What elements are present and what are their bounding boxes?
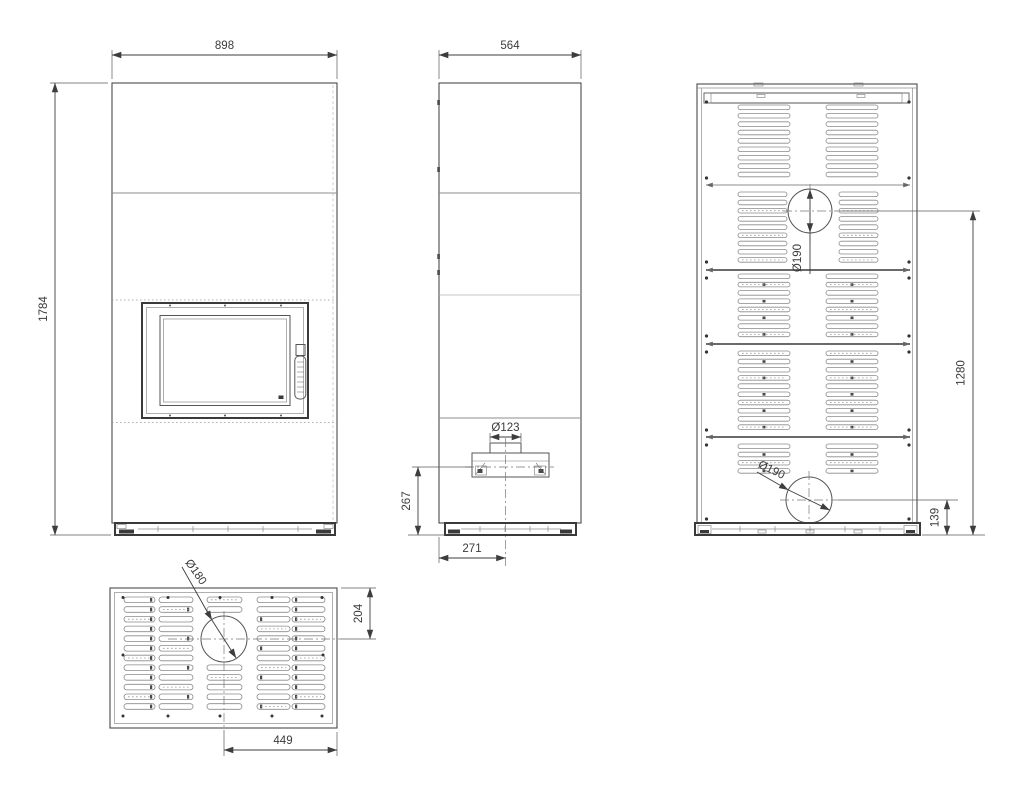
- dim-inlet-height: 267: [401, 491, 413, 510]
- slot-mark: [763, 409, 766, 412]
- vent-slot: [839, 217, 878, 222]
- top-vent-slots: [124, 597, 325, 709]
- slot-mark: [150, 598, 152, 602]
- dim-upper-outlet-height: 1280: [956, 360, 968, 386]
- vent-slot: [738, 249, 787, 254]
- vent-slot: [738, 113, 790, 118]
- screw-dot: [122, 596, 125, 599]
- rear-flue-outlet: Ø190: [756, 459, 838, 523]
- screw-dot: [271, 715, 274, 718]
- slot-mark: [295, 608, 297, 612]
- screw-dot: [907, 334, 910, 337]
- vent-slot: [738, 367, 790, 372]
- vent-slot: [738, 147, 790, 152]
- dim-front-height: 1784: [38, 296, 50, 322]
- dim-inlet-diameter: Ø123: [491, 422, 519, 434]
- slot-mark: [295, 637, 297, 641]
- vent-slot: [826, 105, 878, 110]
- slot-mark: [187, 637, 189, 641]
- vent-slot: [159, 626, 193, 632]
- vent-slot: [738, 225, 787, 230]
- screw-dot: [705, 100, 708, 103]
- slot-mark: [187, 666, 189, 670]
- vent-slot: [738, 444, 790, 449]
- screw-dot: [322, 654, 325, 657]
- side-view: 564 Ø123 267 271: [401, 40, 581, 568]
- vent-slot: [826, 172, 878, 177]
- vent-slot: [257, 597, 290, 603]
- dim-rear-outlet-height: 139: [930, 508, 942, 527]
- slot-mark: [295, 627, 297, 631]
- screw-dot: [705, 428, 708, 431]
- slot-mark: [150, 646, 152, 650]
- screw-dot: [907, 350, 910, 353]
- vent-slot: [738, 324, 790, 329]
- vent-slot: [738, 200, 787, 205]
- screw-dot: [907, 100, 910, 103]
- vent-slot: [839, 249, 878, 254]
- foot: [119, 530, 134, 534]
- vent-slot: [738, 384, 790, 389]
- vent-slot: [159, 655, 193, 661]
- screw-dot: [280, 415, 282, 417]
- vent-slot: [738, 172, 790, 177]
- slot-mark: [295, 598, 297, 602]
- door-screws: [169, 305, 282, 417]
- screw-dot: [705, 443, 708, 446]
- vent-slot: [826, 384, 878, 389]
- vent-slot: [738, 105, 790, 110]
- slot-mark: [295, 705, 297, 709]
- vent-slot: [257, 607, 290, 613]
- slot-mark: [187, 695, 189, 699]
- slot-mark: [150, 637, 152, 641]
- stove-technical-drawing: 898 1784: [0, 0, 1024, 786]
- slot-mark: [150, 666, 152, 670]
- dim-front-width: 898: [215, 40, 234, 52]
- top-view: Ø180 204 449: [110, 557, 376, 756]
- vent-slot: [839, 192, 878, 197]
- slot-mark: [150, 656, 152, 660]
- slot-mark: [851, 393, 854, 396]
- vent-slot: [738, 130, 790, 135]
- upper-flue-outlet: Ø190: [783, 184, 840, 274]
- screw-dot: [705, 276, 708, 279]
- vent-slot: [826, 367, 878, 372]
- screw-dot: [219, 596, 222, 599]
- front-view: 898 1784: [38, 40, 337, 535]
- vent-slot: [826, 113, 878, 118]
- slot-mark: [295, 646, 297, 650]
- door-handle: [295, 345, 306, 400]
- dim-rear-outlet-diameter: Ø190: [756, 459, 787, 482]
- vent-slot: [826, 164, 878, 169]
- vent-slot: [738, 155, 790, 160]
- screw-dot: [907, 428, 910, 431]
- slot-mark: [851, 409, 854, 412]
- screw-dot: [280, 305, 282, 307]
- foot: [316, 530, 331, 534]
- screw-dot: [122, 654, 125, 657]
- dim-outlet-from-side: 449: [273, 735, 292, 747]
- vent-slot: [257, 655, 290, 661]
- screw-dot: [705, 334, 708, 337]
- slot-mark: [150, 676, 152, 680]
- vent-slot: [738, 122, 790, 127]
- slot-mark: [851, 317, 854, 320]
- vent-slot: [738, 217, 787, 222]
- slot-mark: [150, 627, 152, 631]
- slot-mark: [851, 360, 854, 363]
- brand-mark: [279, 396, 284, 400]
- screw-dot: [705, 350, 708, 353]
- vent-slot: [826, 139, 878, 144]
- firebox-door: [142, 303, 308, 418]
- slot-mark: [763, 317, 766, 320]
- screw-dot: [907, 176, 910, 179]
- vent-slot: [826, 147, 878, 152]
- dim-outlet-from-back: 204: [353, 603, 365, 623]
- dim-side-width: 564: [500, 40, 520, 52]
- screw-dot: [169, 305, 171, 307]
- vent-slot: [826, 274, 878, 279]
- vent-slot: [826, 444, 878, 449]
- vent-slot: [159, 616, 193, 622]
- back-screws: [705, 100, 911, 520]
- vent-slot: [257, 636, 290, 642]
- slot-mark: [763, 300, 766, 303]
- screw-dot: [224, 305, 226, 307]
- back-vent-slots: [738, 105, 878, 473]
- vent-slot: [826, 417, 878, 422]
- vent-slot: [839, 241, 878, 246]
- slot-mark: [851, 453, 854, 456]
- side-dimensions: 564 Ø123 267 271: [401, 40, 581, 563]
- screw-dot: [167, 596, 170, 599]
- vent-slot: [207, 684, 242, 690]
- vent-slot: [738, 192, 787, 197]
- slot-mark: [150, 705, 152, 709]
- vent-slot: [826, 155, 878, 160]
- slot-mark: [851, 300, 854, 303]
- dim-upper-outlet-diameter: Ø190: [792, 244, 804, 272]
- vent-slot: [738, 241, 787, 246]
- vent-slot: [257, 694, 290, 700]
- vent-slot: [207, 704, 242, 710]
- screw-dot: [705, 260, 708, 263]
- dim-top-outlet-diameter: Ø180: [182, 557, 208, 587]
- slot-mark: [150, 617, 152, 621]
- foot: [448, 530, 460, 534]
- screw-dot: [907, 276, 910, 279]
- screw-dot: [122, 715, 125, 718]
- vent-slot: [826, 324, 878, 329]
- screw-dot: [705, 517, 708, 520]
- vent-slot: [738, 417, 790, 422]
- screw-dot: [271, 596, 274, 599]
- screw-dot: [224, 415, 226, 417]
- screw-dot: [167, 715, 170, 718]
- vent-slot: [738, 139, 790, 144]
- vent-slot: [826, 291, 878, 296]
- screw-dot: [219, 715, 222, 718]
- screw-dot: [169, 415, 171, 417]
- slot-mark: [763, 453, 766, 456]
- screw-dot: [907, 260, 910, 263]
- slot-mark: [150, 608, 152, 612]
- vent-slot: [159, 704, 193, 710]
- screw-dot: [907, 517, 910, 520]
- slot-mark: [763, 393, 766, 396]
- front-base: [115, 523, 335, 535]
- slot-mark: [260, 617, 262, 621]
- screw-dot: [907, 443, 910, 446]
- screw-dot: [705, 176, 708, 179]
- foot: [560, 530, 572, 534]
- screw-dot: [321, 715, 324, 718]
- vent-slot: [826, 122, 878, 127]
- slot-mark: [763, 360, 766, 363]
- vent-slot: [738, 274, 790, 279]
- slot-mark: [260, 676, 262, 680]
- slot-mark: [295, 685, 297, 689]
- door-glass: [160, 316, 290, 406]
- screw-dot: [321, 596, 324, 599]
- slot-mark: [150, 695, 152, 699]
- front-dimensions: 898 1784: [38, 40, 337, 535]
- vent-slot: [826, 130, 878, 135]
- vent-slot: [159, 675, 193, 681]
- slot-mark: [260, 646, 262, 650]
- slot-mark: [295, 666, 297, 670]
- back-base: [695, 523, 920, 535]
- vent-slot: [207, 665, 242, 671]
- vent-slot: [839, 200, 878, 205]
- vent-slot: [159, 597, 193, 603]
- slot-mark: [150, 685, 152, 689]
- slot-mark: [295, 676, 297, 680]
- side-base: [445, 523, 576, 535]
- vent-slot: [257, 684, 290, 690]
- vent-slot: [738, 164, 790, 169]
- vent-slot: [738, 291, 790, 296]
- vent-slot: [207, 607, 242, 613]
- top-channel: [704, 83, 909, 103]
- vent-slot: [839, 225, 878, 230]
- vent-slot: [207, 694, 242, 700]
- top-dimensions: 204 449: [224, 588, 376, 756]
- technical-drawing-page: 898 1784: [0, 0, 1024, 786]
- back-view: Ø190 Ø190: [695, 83, 985, 535]
- slot-mark: [851, 470, 854, 473]
- dim-inlet-offset: 271: [462, 543, 481, 555]
